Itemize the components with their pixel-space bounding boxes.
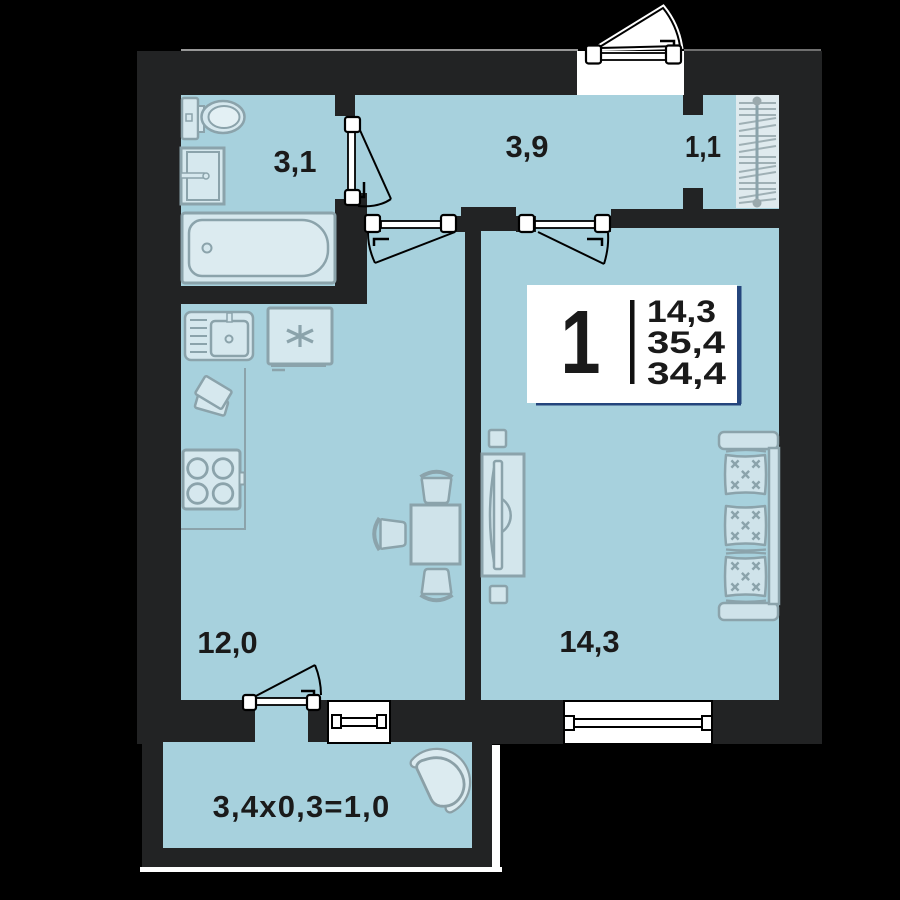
- svg-text:12,0: 12,0: [197, 625, 257, 660]
- svg-text:14,3: 14,3: [559, 624, 619, 659]
- svg-text:34,4: 34,4: [647, 355, 727, 391]
- svg-text:3,9: 3,9: [505, 129, 548, 164]
- svg-text:1: 1: [561, 293, 601, 393]
- svg-text:1,1: 1,1: [685, 129, 721, 164]
- svg-text:3,1: 3,1: [273, 144, 316, 179]
- svg-text:3,4x0,3=1,0: 3,4x0,3=1,0: [213, 789, 391, 824]
